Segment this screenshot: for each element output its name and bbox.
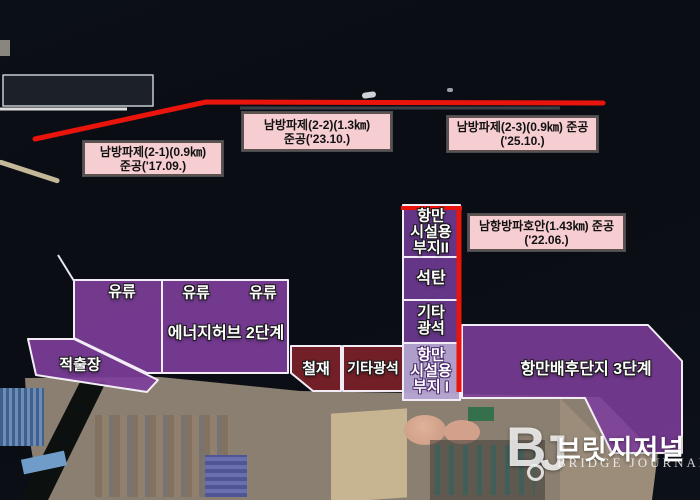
zone-label-oil-2: 유류 [182, 282, 210, 303]
zone-label-strip-other-ore: 기타 광석 [417, 305, 445, 337]
label-2-2-line2: 준공('23.10.) [244, 132, 390, 146]
zone-label-strip-site2: 항만 시설용 부지II [410, 209, 451, 258]
label-2-1-line1: 남방파제(2-1)(0.9㎞) [85, 145, 221, 159]
zone-label-steel: 철재 [302, 358, 330, 379]
label-2-3-line2: ('25.10.) [449, 134, 596, 148]
label-hoan-line1: 남항방파호안(1.43㎞) 준공 [470, 219, 623, 233]
zone-label-hinterland: 항만배후단지 3단계 [520, 355, 651, 379]
zone-label-oil-3: 유류 [249, 282, 277, 303]
shore-boundary-line [58, 255, 74, 281]
label-box-nambang-2-3: 남방파제(2-3)(0.9㎞) 준공 ('25.10.) [447, 116, 598, 152]
empty-outline-box [3, 75, 153, 106]
port-plan-map: 유류 유류 유류 에너지허브 2단계 적출장 철재 기타광석 항만 시설용 부지… [0, 0, 700, 500]
strip-site2-line3: 부지II [410, 241, 451, 257]
label-box-namhang-hoan: 남항방파호안(1.43㎞) 준공 ('22.06.) [468, 214, 625, 251]
strip-site1-line2: 시설용 [410, 364, 451, 380]
zone-label-coal: 석탄 [416, 264, 445, 288]
zone-label-other-ore: 기타광석 [347, 358, 399, 378]
zone-label-energy-hub: 에너지허브 2단계 [168, 319, 284, 343]
strip-ore-line2: 광석 [417, 321, 445, 337]
label-2-3-line1: 남방파제(2-3)(0.9㎞) 준공 [449, 120, 596, 134]
strip-site2-line2: 시설용 [410, 225, 451, 241]
label-box-nambang-2-2: 남방파제(2-2)(1.3㎞) 준공('23.10.) [242, 112, 392, 151]
label-hoan-line2: ('22.06.) [470, 233, 623, 247]
strip-site1-line3: 부지 I [410, 380, 451, 396]
label-2-2-line1: 남방파제(2-2)(1.3㎞) [244, 118, 390, 132]
logo-anchor-ring-icon [527, 464, 544, 481]
strip-site1-line1: 항만 [410, 348, 451, 364]
label-box-nambang-2-1: 남방파제(2-1)(0.9㎞) 준공('17.09.) [83, 141, 223, 176]
logo-brand-english: BRIDGE JOURNAL [557, 455, 700, 471]
zone-label-oil-1: 유류 [108, 281, 136, 302]
strip-site2-line1: 항만 [410, 209, 451, 225]
zone-label-strip-site1: 항만 시설용 부지 I [410, 348, 451, 397]
zone-label-jeokchuljang: 적출장 [59, 354, 100, 375]
label-2-1-line2: 준공('17.09.) [85, 159, 221, 173]
strip-ore-line1: 기타 [417, 305, 445, 321]
